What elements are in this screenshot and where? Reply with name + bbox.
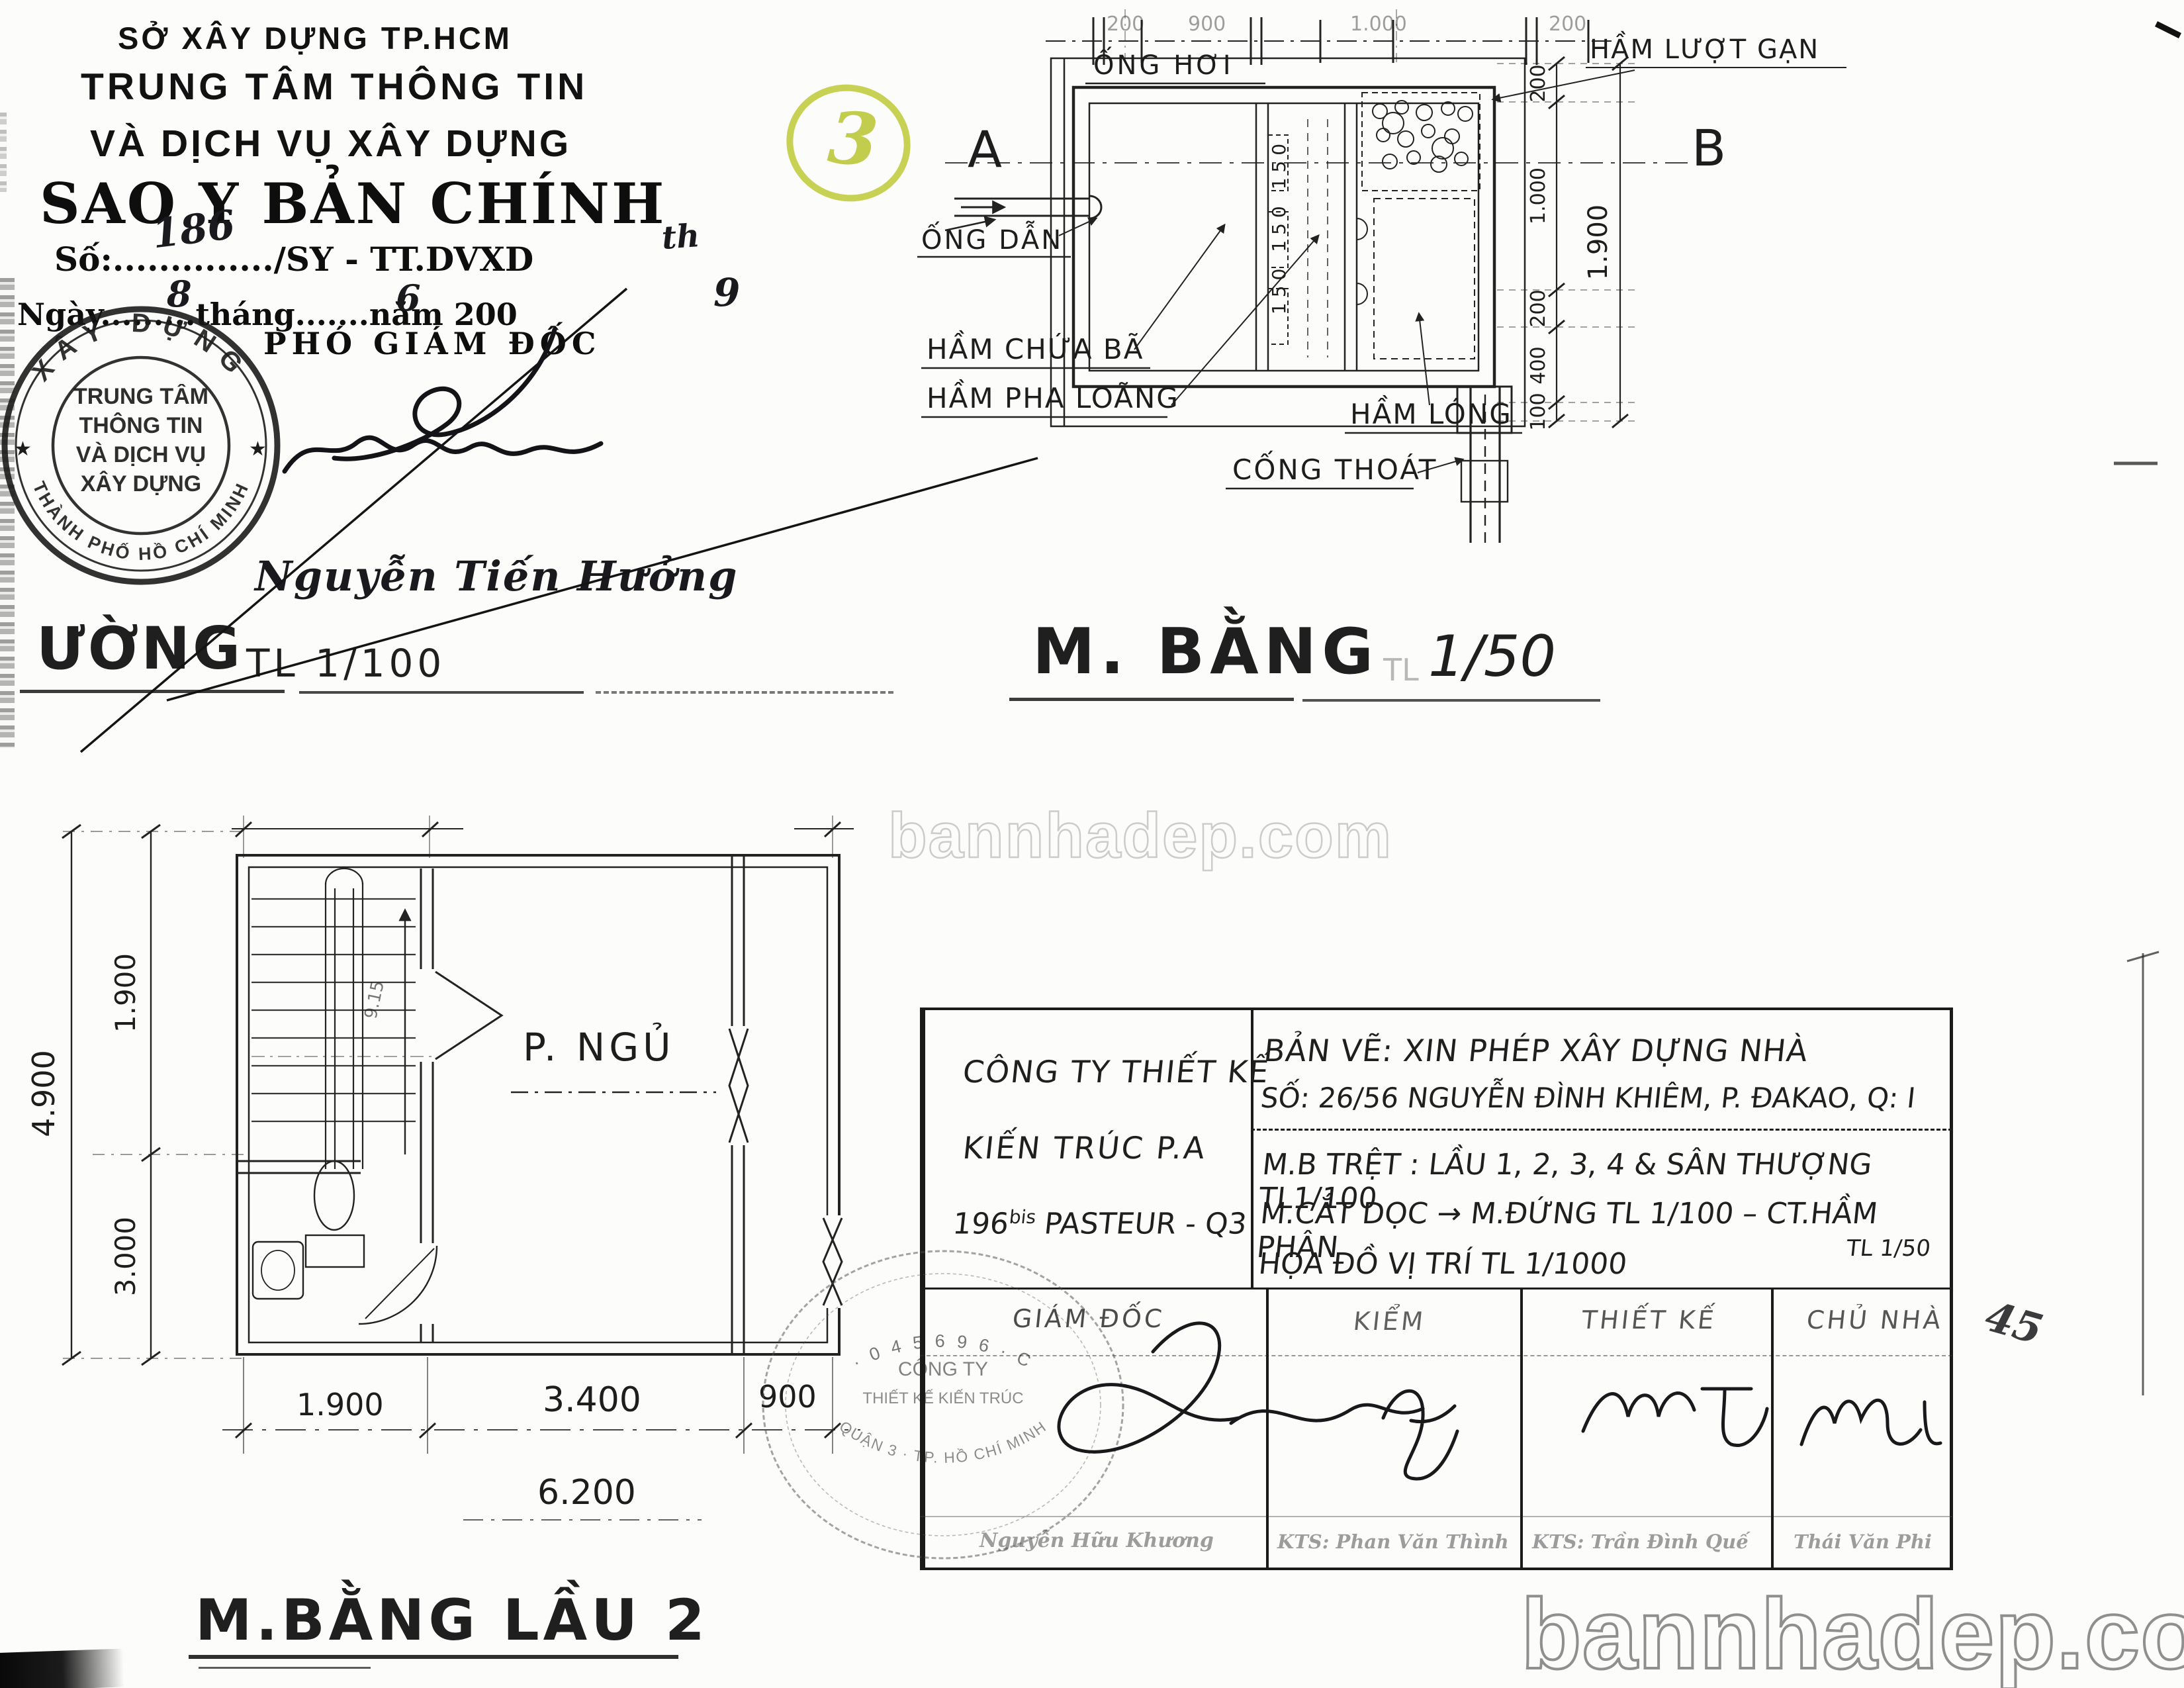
content-line-2-scale: TL 1/50 — [1845, 1235, 1932, 1262]
septic-title-underline-2 — [1302, 699, 1600, 702]
company-addr-sup: bis — [1008, 1206, 1037, 1228]
dim-bottom-3: 900 — [758, 1379, 817, 1415]
left-title-underline-2 — [299, 691, 584, 694]
agency-line-3: VÀ DỊCH VỤ XÂY DỰNG — [90, 122, 571, 165]
col-header-thiet-ke: THIẾT KẾ — [1580, 1305, 1718, 1335]
name-giam-doc: Nguyễn Hữu Khương — [979, 1529, 1214, 1552]
number-suffix: /SY - TT.DVXD — [274, 240, 534, 279]
septic-plan-title: M. BẰNG — [1032, 616, 1379, 688]
dim-bottom-total: 6.200 — [537, 1473, 636, 1513]
col-header-kiem: KIỂM — [1352, 1307, 1428, 1336]
scan-noise-left-2 — [0, 113, 7, 192]
stair-note: 9.15 — [361, 979, 388, 1021]
dim-bottom-1: 1.900 — [296, 1387, 384, 1423]
agency-line-1: SỞ XÂY DỰNG TP.HCM — [118, 20, 512, 56]
stamp-arc-top: XÂY DỰNG — [26, 308, 255, 387]
content-line-3: HỌA ĐỒ VỊ TRÍ TL 1/1000 — [1257, 1247, 1629, 1281]
label-ham-luot-gan: HẦM LƯỢT GẠN — [1590, 30, 1819, 65]
dim-left-2: 3.000 — [109, 1217, 142, 1296]
scan-smear-bottom-left — [0, 1648, 124, 1688]
round-stamp: XÂY DỰNG THÀNH PHỐ HỒ CHÍ MINH ★ ★ TRUNG… — [0, 290, 296, 601]
septic-right-dim-1: 200 — [1527, 64, 1550, 102]
tb-divider-company — [1251, 1008, 1253, 1288]
number-label: Số: — [54, 240, 113, 279]
septic-right-dim-3: 200 — [1527, 289, 1550, 327]
agency-line-2: TRUNG TÂM THÔNG TIN — [81, 65, 588, 109]
col-header-chu-nha: CHỦ NHÀ — [1805, 1305, 1945, 1335]
stamp-line-3: VÀ DỊCH VỤ — [76, 442, 206, 467]
tb-header-underline — [920, 1355, 1952, 1356]
septic-right-dim-4: 400 — [1527, 346, 1550, 384]
copy-certification-title: SAO Y BẢN CHÍNH — [40, 171, 666, 236]
col-header-giam-doc: GIÁM ĐỐC — [1011, 1304, 1166, 1333]
company-address: 196bis PASTEUR - Q3 — [951, 1206, 1248, 1241]
title-block: CÔNG TY THIẾT KẾ KIẾN TRÚC P.A 196bis PA… — [920, 1008, 1952, 1570]
tb-divider-h2 — [920, 1288, 1952, 1289]
left-drawing-scale: TL 1/100 — [246, 641, 445, 686]
company-addr-rest: PASTEUR - Q3 — [1033, 1207, 1248, 1241]
septic-plan-drawing: 200 900 1.000 200 ỐNG HƠI HẦM LƯỢT GẠN A… — [913, 0, 1827, 569]
name-kiem: KTS: Phan Văn Thình — [1277, 1530, 1509, 1553]
tb-col-divider-3 — [1771, 1288, 1774, 1570]
tb-names-divider — [920, 1516, 1952, 1517]
label-cong-thoat: CỐNG THOÁT — [1232, 450, 1437, 486]
document-number-line: Số:............../SY - TT.DVXD — [54, 240, 533, 279]
stamp-line-2: THÔNG TIN — [79, 412, 203, 438]
page-mark-circle: 3 — [774, 71, 923, 214]
date-year-handwritten: 9 — [713, 270, 740, 315]
company-line-2: KIẾN TRÚC P.A — [961, 1130, 1208, 1166]
left-title-underline-3 — [596, 691, 893, 694]
label-ham-pha-loang: HẦM PHA LOÃNG — [927, 379, 1179, 414]
company-line-1: CÔNG TY THIẾT KẾ — [961, 1054, 1271, 1090]
label-ham-long: HẦM LÓNG — [1350, 395, 1512, 430]
septic-right-dim-2: 1.000 — [1527, 167, 1550, 224]
septic-plan-scale: 1/50 — [1428, 624, 1556, 690]
stamp-star-right: ★ — [249, 438, 267, 460]
section-marker-a: A — [968, 120, 1002, 179]
margin-tick — [2127, 952, 2159, 961]
deputy-director-title: PHÓ GIÁM ĐỐC — [263, 326, 601, 361]
date-month-handwritten: 6 — [396, 277, 421, 319]
page-mark-number: 3 — [825, 96, 881, 183]
corner-mark — [2156, 24, 2180, 36]
tb-col-divider-2 — [1520, 1288, 1523, 1570]
watermark-bottom-right: bannhadep.com — [1521, 1577, 2184, 1688]
svg-text:XÂY DỰNG: XÂY DỰNG — [26, 308, 255, 387]
stamp-star-left: ★ — [14, 438, 32, 460]
room-label-bedroom: P. NGỦ — [523, 1021, 675, 1070]
company-addr-num: 196 — [951, 1207, 1010, 1241]
tb-border-top — [920, 1008, 1952, 1010]
dim-bottom-2: 3.400 — [543, 1380, 641, 1420]
septic-top-dim-4: 200 — [1549, 13, 1586, 36]
stamp-line-4: XÂY DỰNG — [81, 471, 202, 496]
floor-plan-title: M.BẰNG LẦU 2 — [195, 1587, 709, 1654]
floor-plan-drawing: P. NGỦ 9.15 4.900 1.900 3.000 1.900 3.40… — [0, 794, 927, 1556]
dim-left-total: 4.900 — [26, 1050, 62, 1137]
floor-plan-title-underline — [189, 1655, 678, 1659]
watermark-center: bannhadep.com — [888, 800, 1392, 872]
tb-divider-h1 — [1251, 1129, 1952, 1131]
tb-col-divider-1 — [1266, 1288, 1269, 1570]
septic-inner-dims: 150 150 150 — [1268, 138, 1290, 314]
dim-left-1: 1.900 — [109, 953, 142, 1033]
septic-plan-scale-prefix: TL — [1383, 652, 1419, 688]
septic-title-underline — [1009, 698, 1294, 701]
septic-right-dim-total: 1.900 — [1583, 205, 1614, 281]
stamp-line-1: TRUNG TÂM — [73, 384, 208, 409]
scanned-permit-sheet: SỞ XÂY DỰNG TP.HCM TRUNG TÂM THÔNG TIN V… — [0, 0, 2184, 1688]
name-chu-nha: Thái Văn Phi — [1794, 1530, 1932, 1553]
label-ong-dan: ỐNG DẪN — [921, 220, 1063, 256]
tb-border-bottom — [920, 1568, 1953, 1570]
left-drawing-title: ƯỜNG — [36, 614, 243, 682]
name-thiet-ke: KTS: Trần Đình Quế — [1532, 1530, 1749, 1553]
number-hand-initials: th — [660, 217, 701, 257]
drawing-title: BẢN VẼ: XIN PHÉP XÂY DỰNG NHÀ — [1262, 1033, 1809, 1068]
section-marker-b: B — [1692, 118, 1726, 177]
signer-name: Nguyễn Tiến Hưởng — [255, 552, 738, 600]
septic-top-dim-2: 900 — [1188, 13, 1226, 36]
septic-top-dim-3: 1.000 — [1350, 13, 1407, 36]
septic-right-dim-5: 100 — [1527, 393, 1550, 430]
left-title-underline — [20, 690, 285, 693]
site-address: SỐ: 26/56 NGUYỄN ĐÌNH KHIÊM, P. ĐAKAO, Q… — [1259, 1082, 1917, 1114]
septic-top-dim-1: 200 — [1107, 13, 1144, 36]
floor-plan-title-underline-2 — [199, 1667, 371, 1669]
label-ham-chua-ba: HẦM CHỨA BÃ — [927, 330, 1144, 365]
label-ong-hoi: ỐNG HƠI — [1093, 46, 1234, 81]
margin-scribble: 45 — [1980, 1292, 2048, 1354]
